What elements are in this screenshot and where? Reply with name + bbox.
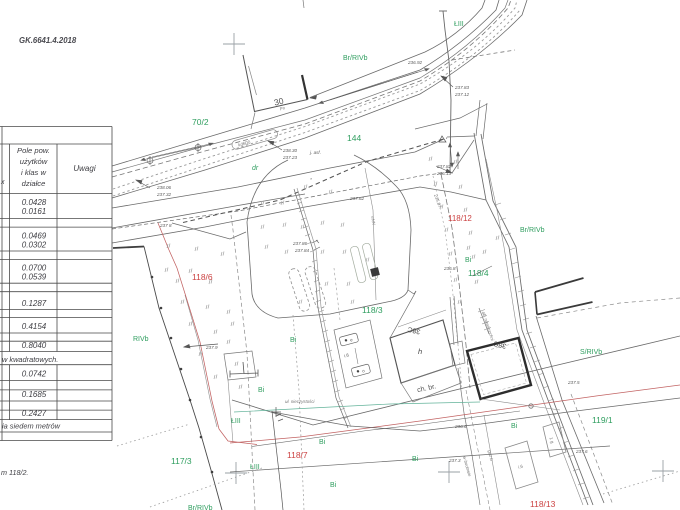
svg-text:237.12: 237.12 <box>454 92 469 97</box>
svg-text:Br/RIVb: Br/RIVb <box>343 55 368 62</box>
svg-text:0.0742: 0.0742 <box>22 370 47 379</box>
svg-text:*: * <box>310 177 312 182</box>
svg-text:0.1287: 0.1287 <box>22 299 47 308</box>
svg-text:237.23: 237.23 <box>282 155 297 160</box>
svg-text:0.2427: 0.2427 <box>22 409 47 418</box>
svg-text:ŁIII: ŁIII <box>250 464 260 471</box>
svg-text:Bi: Bi <box>511 423 518 430</box>
svg-text:ia siedem metrów: ia siedem metrów <box>2 422 61 431</box>
svg-text:237 8: 237 8 <box>159 223 172 228</box>
svg-text:S/RIVb: S/RIVb <box>580 349 602 356</box>
svg-text:237.9: 237.9 <box>205 345 218 350</box>
svg-text:237.84: 237.84 <box>294 248 309 253</box>
svg-text:m 118/2.: m 118/2. <box>1 468 28 477</box>
svg-text:0.4154: 0.4154 <box>22 322 47 331</box>
svg-text:237.5: 237.5 <box>567 380 580 385</box>
svg-text:Br/RIVb: Br/RIVb <box>188 505 213 510</box>
svg-text:Bi: Bi <box>258 387 265 394</box>
svg-text:118/13: 118/13 <box>530 499 556 509</box>
svg-text:0.0539: 0.0539 <box>22 273 47 282</box>
svg-text:0.0161: 0.0161 <box>22 207 46 216</box>
svg-text:0.0700: 0.0700 <box>22 264 47 273</box>
svg-text:Bi: Bi <box>290 337 297 344</box>
svg-text:237.3: 237.3 <box>448 458 461 463</box>
svg-text:j. asf.: j. asf. <box>309 150 321 155</box>
svg-text:Bi: Bi <box>465 257 472 264</box>
svg-text:Br/RIVb: Br/RIVb <box>520 227 545 234</box>
svg-text:Uwagi: Uwagi <box>73 164 95 173</box>
svg-text:uł. nieczystości: uł. nieczystości <box>285 399 316 404</box>
svg-text:238.06: 238.06 <box>156 185 171 190</box>
svg-text:w kwadratowych.: w kwadratowych. <box>2 355 58 364</box>
svg-text:0.8040: 0.8040 <box>22 341 47 350</box>
svg-text:h: h <box>418 347 422 356</box>
svg-text:237.32: 237.32 <box>156 192 171 197</box>
svg-text:Bi: Bi <box>319 439 326 446</box>
svg-text:ŁIII: ŁIII <box>454 21 464 28</box>
svg-text:dr: dr <box>252 165 259 172</box>
svg-text:GK.6641.4.2018: GK.6641.4.2018 <box>19 36 77 45</box>
svg-text:118/12: 118/12 <box>448 214 472 223</box>
svg-text:144: 144 <box>347 133 361 143</box>
svg-text:użytków: użytków <box>20 157 48 166</box>
svg-text:237.86: 237.86 <box>292 241 307 246</box>
svg-text:działce: działce <box>22 179 46 188</box>
svg-text:0.1685: 0.1685 <box>22 390 47 399</box>
svg-text:118/6: 118/6 <box>192 272 213 282</box>
svg-text:238.30: 238.30 <box>282 148 297 153</box>
svg-text:70/2: 70/2 <box>192 117 209 127</box>
svg-text:Pole pow.: Pole pow. <box>17 146 50 155</box>
svg-text:237.83: 237.83 <box>454 85 469 90</box>
svg-text:237.6: 237.6 <box>575 449 588 454</box>
svg-text:118/7: 118/7 <box>287 450 308 460</box>
svg-text:RIVb: RIVb <box>133 336 149 343</box>
svg-text:0.0302: 0.0302 <box>22 241 47 250</box>
svg-text:236.6: 236.6 <box>454 424 467 429</box>
svg-text:Bi: Bi <box>330 482 337 489</box>
svg-text:237.82: 237.82 <box>436 164 451 169</box>
svg-text:0.0469: 0.0469 <box>22 232 47 241</box>
svg-text:117/3: 117/3 <box>171 456 192 466</box>
svg-text:236.92: 236.92 <box>407 60 422 65</box>
svg-text:Bi: Bi <box>412 456 419 463</box>
svg-text:x: x <box>0 179 5 186</box>
svg-text:ŁIII: ŁIII <box>231 418 241 425</box>
svg-text:0.0428: 0.0428 <box>22 198 47 207</box>
svg-text:118/3: 118/3 <box>362 305 383 315</box>
svg-text:i klas w: i klas w <box>21 168 46 177</box>
svg-text:119/1: 119/1 <box>592 415 613 425</box>
svg-text:236.8: 236.8 <box>443 266 456 271</box>
svg-text:237.62: 237.62 <box>349 196 364 201</box>
